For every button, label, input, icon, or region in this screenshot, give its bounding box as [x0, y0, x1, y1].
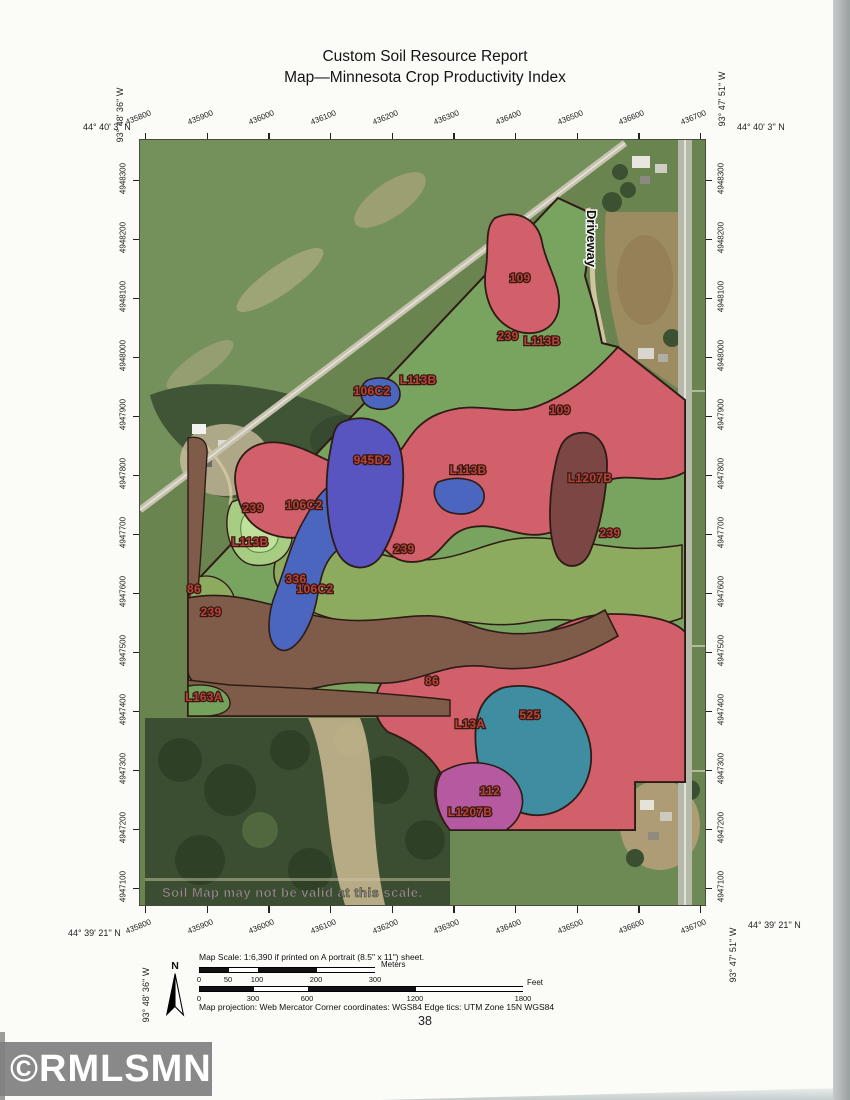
map-disclaimer: Soil Map may not be valid at this scale. [162, 885, 423, 900]
tick-label-left: 4947300 [119, 750, 128, 788]
soil-zone-label-239: 239 [201, 605, 222, 619]
farm-building [640, 176, 650, 184]
tick-label-bottom: 436400 [494, 917, 522, 935]
soil-zone-label-L113B: L113B [524, 334, 561, 348]
bare-field-patch [617, 235, 673, 325]
tick-label-left: 4947600 [119, 573, 128, 611]
tick-mark-left [133, 711, 140, 712]
soil-zone-label-L13A: L13A [455, 717, 486, 731]
coord-top-right-lon: 93° 47' 51'' W [717, 54, 727, 144]
tick-mark-bottom [453, 906, 454, 913]
farm-building [648, 832, 659, 840]
tick-mark-top [207, 133, 208, 140]
tick-mark-top [638, 133, 639, 140]
scan-shadow [380, 1087, 833, 1100]
tick-label-top: 436500 [556, 108, 584, 126]
tick-mark-bottom [330, 906, 331, 913]
trees [204, 764, 256, 816]
farm-building [640, 800, 654, 810]
farm-building [655, 164, 667, 173]
tick-label-bottom: 436600 [618, 917, 646, 935]
trees [405, 820, 445, 860]
tick-label-top: 436200 [371, 108, 399, 126]
coord-top-left-lon: 93° 48' 36'' W [115, 70, 125, 160]
tick-mark-top [145, 133, 146, 140]
tick-label-right: 4947100 [717, 868, 726, 906]
tick-mark-left [133, 475, 140, 476]
section-line [692, 645, 705, 647]
tick-mark-right [705, 239, 712, 240]
trees [626, 849, 644, 867]
tick-label-right: 4947700 [717, 514, 726, 552]
tick-label-left: 4947200 [119, 809, 128, 847]
tick-mark-top [268, 133, 269, 140]
tick-mark-bottom [638, 906, 639, 913]
tick-label-left: 4948000 [119, 337, 128, 375]
coord-bottom-left-lat: 44° 39' 21'' N [68, 928, 121, 938]
trees [270, 730, 310, 770]
tick-mark-right [705, 711, 712, 712]
tick-mark-bottom [515, 906, 516, 913]
feet-scale-bar [199, 986, 523, 992]
farm-building [192, 424, 206, 434]
soil-zone-label-239: 239 [243, 501, 264, 515]
coord-top-right-lat: 44° 40' 3'' N [737, 122, 785, 132]
page-number: 38 [0, 1014, 850, 1028]
tick-label-top: 436300 [433, 108, 461, 126]
soil-zone-label-L1207B: L1207B [448, 805, 493, 819]
trees [620, 182, 636, 198]
soil-zone-label-L163A: L163A [185, 690, 223, 704]
farm-building [660, 812, 672, 821]
tick-mark-top [515, 133, 516, 140]
soil-zone-label-L113B: L113B [232, 535, 269, 549]
tick-label-left: 4948300 [119, 160, 128, 198]
meters-tick: 200 [310, 975, 323, 984]
watermark-text: ©RMLSMN [10, 1048, 212, 1091]
trees [602, 192, 622, 212]
meters-tick: 0 [197, 975, 201, 984]
tick-label-bottom: 436200 [371, 917, 399, 935]
soil-zone-label-106C2: 106C2 [286, 498, 323, 512]
tick-mark-top [577, 133, 578, 140]
tick-mark-left [133, 829, 140, 830]
tick-label-left: 4947800 [119, 455, 128, 493]
tick-label-bottom: 436100 [309, 917, 337, 935]
soil-zone-label-106C2: 106C2 [297, 582, 334, 596]
tick-label-bottom: 436700 [679, 917, 707, 935]
tick-mark-left [133, 298, 140, 299]
feet-unit-label: Feet [527, 978, 543, 987]
soil-zone-label-525: 525 [520, 708, 541, 722]
tick-label-left: 4947900 [119, 396, 128, 434]
tick-mark-right [705, 298, 712, 299]
tick-label-left: 4948100 [119, 278, 128, 316]
tick-mark-right [705, 180, 712, 181]
tick-mark-right [705, 652, 712, 653]
tick-mark-right [705, 888, 712, 889]
tick-label-left: 4948200 [119, 219, 128, 257]
tick-mark-right [705, 475, 712, 476]
soil-zone-label-106C2: 106C2 [354, 384, 391, 398]
tick-label-right: 4947500 [717, 632, 726, 670]
tick-label-top: 436400 [494, 108, 522, 126]
soil-zone-label-109: 109 [510, 271, 531, 285]
tick-mark-left [133, 593, 140, 594]
scanned-report-page: Custom Soil Resource Report Map—Minnesot… [0, 0, 850, 1100]
trees [612, 164, 628, 180]
tick-label-bottom: 435800 [124, 917, 152, 935]
tick-mark-bottom [145, 906, 146, 913]
tick-label-left: 4947400 [119, 691, 128, 729]
tick-label-bottom: 435900 [186, 917, 214, 935]
tick-mark-left [133, 357, 140, 358]
trees [242, 812, 278, 848]
trees [175, 835, 225, 885]
projection-text: Map projection: Web Mercator Corner coor… [199, 1002, 554, 1012]
trees [158, 738, 202, 782]
meters-tick: 100 [251, 975, 264, 984]
tick-label-right: 4948100 [717, 278, 726, 316]
tick-label-right: 4947900 [717, 396, 726, 434]
farm-building [658, 354, 668, 362]
soil-zone-label-239: 239 [498, 329, 519, 343]
tick-label-top: 436000 [248, 108, 276, 126]
tick-mark-left [133, 180, 140, 181]
tick-mark-right [705, 534, 712, 535]
tick-mark-right [705, 770, 712, 771]
soil-zone-label-86: 86 [187, 582, 201, 596]
tick-label-bottom: 436500 [556, 917, 584, 935]
tick-mark-right [705, 416, 712, 417]
tick-label-left: 4947100 [119, 868, 128, 906]
driveway-label: Driveway [584, 210, 599, 268]
tick-label-top: 436100 [309, 108, 337, 126]
meters-tick: 300 [369, 975, 382, 984]
soil-map: Driveway Soil Map may not be valid at th… [140, 140, 705, 905]
tick-mark-top [330, 133, 331, 140]
coord-bottom-right-lat: 44° 39' 21'' N [748, 920, 801, 930]
soil-zone-label-112: 112 [480, 784, 500, 798]
north-label: N [162, 960, 188, 972]
tick-label-right: 4947300 [717, 750, 726, 788]
section-line [692, 770, 705, 772]
tick-mark-top [453, 133, 454, 140]
aerial-soil-map-canvas: Driveway Soil Map may not be valid at th… [140, 140, 705, 905]
tick-label-top: 435800 [124, 108, 152, 126]
tick-label-right: 4947200 [717, 809, 726, 847]
tick-label-bottom: 436000 [248, 917, 276, 935]
tick-mark-bottom [268, 906, 269, 913]
soil-zone-label-L1207B: L1207B [568, 471, 613, 485]
scan-edge-band [833, 0, 850, 1100]
tick-mark-right [705, 829, 712, 830]
tick-mark-left [133, 534, 140, 535]
tick-label-top: 436600 [618, 108, 646, 126]
soil-zone-label-L113B: L113B [400, 373, 437, 387]
tick-mark-bottom [207, 906, 208, 913]
soil-zone-label-239: 239 [600, 526, 621, 540]
tick-mark-left [133, 888, 140, 889]
coord-bottom-right-lon: 93° 47' 51'' W [728, 910, 738, 1000]
tick-mark-left [133, 770, 140, 771]
tick-mark-bottom [577, 906, 578, 913]
farm-building [638, 348, 654, 359]
soil-zone-label-945D2: 945D2 [354, 453, 391, 467]
tick-mark-top [392, 133, 393, 140]
tick-label-right: 4947600 [717, 573, 726, 611]
meters-tick: 50 [224, 975, 232, 984]
tick-mark-top [700, 133, 701, 140]
section-line [692, 390, 705, 392]
soil-zone-label-L113B: L113B [450, 463, 487, 477]
tick-label-left: 4947700 [119, 514, 128, 552]
tick-mark-right [705, 593, 712, 594]
soil-zone-label-239: 239 [394, 542, 415, 556]
tick-mark-right [705, 357, 712, 358]
farm-building [632, 156, 650, 168]
soil-zone-label-86: 86 [425, 674, 439, 688]
section-line [145, 878, 460, 881]
tick-mark-left [133, 652, 140, 653]
tick-label-bottom: 436300 [433, 917, 461, 935]
tick-mark-bottom [392, 906, 393, 913]
tick-label-top: 436700 [679, 108, 707, 126]
tick-mark-bottom [700, 906, 701, 913]
tick-mark-left [133, 416, 140, 417]
meters-unit-label: Meters [381, 960, 405, 969]
tick-label-top: 435900 [186, 108, 214, 126]
watermark: ©RMLSMN [0, 1042, 212, 1096]
tick-label-right: 4947400 [717, 691, 726, 729]
soil-zone-label-109: 109 [550, 403, 571, 417]
tick-label-right: 4947800 [717, 455, 726, 493]
tick-label-right: 4948000 [717, 337, 726, 375]
tick-label-right: 4948300 [717, 160, 726, 198]
north-arrow-icon [162, 972, 188, 1018]
tick-label-left: 4947500 [119, 632, 128, 670]
meters-scale-bar [199, 967, 375, 973]
tick-mark-left [133, 239, 140, 240]
tick-label-right: 4948200 [717, 219, 726, 257]
